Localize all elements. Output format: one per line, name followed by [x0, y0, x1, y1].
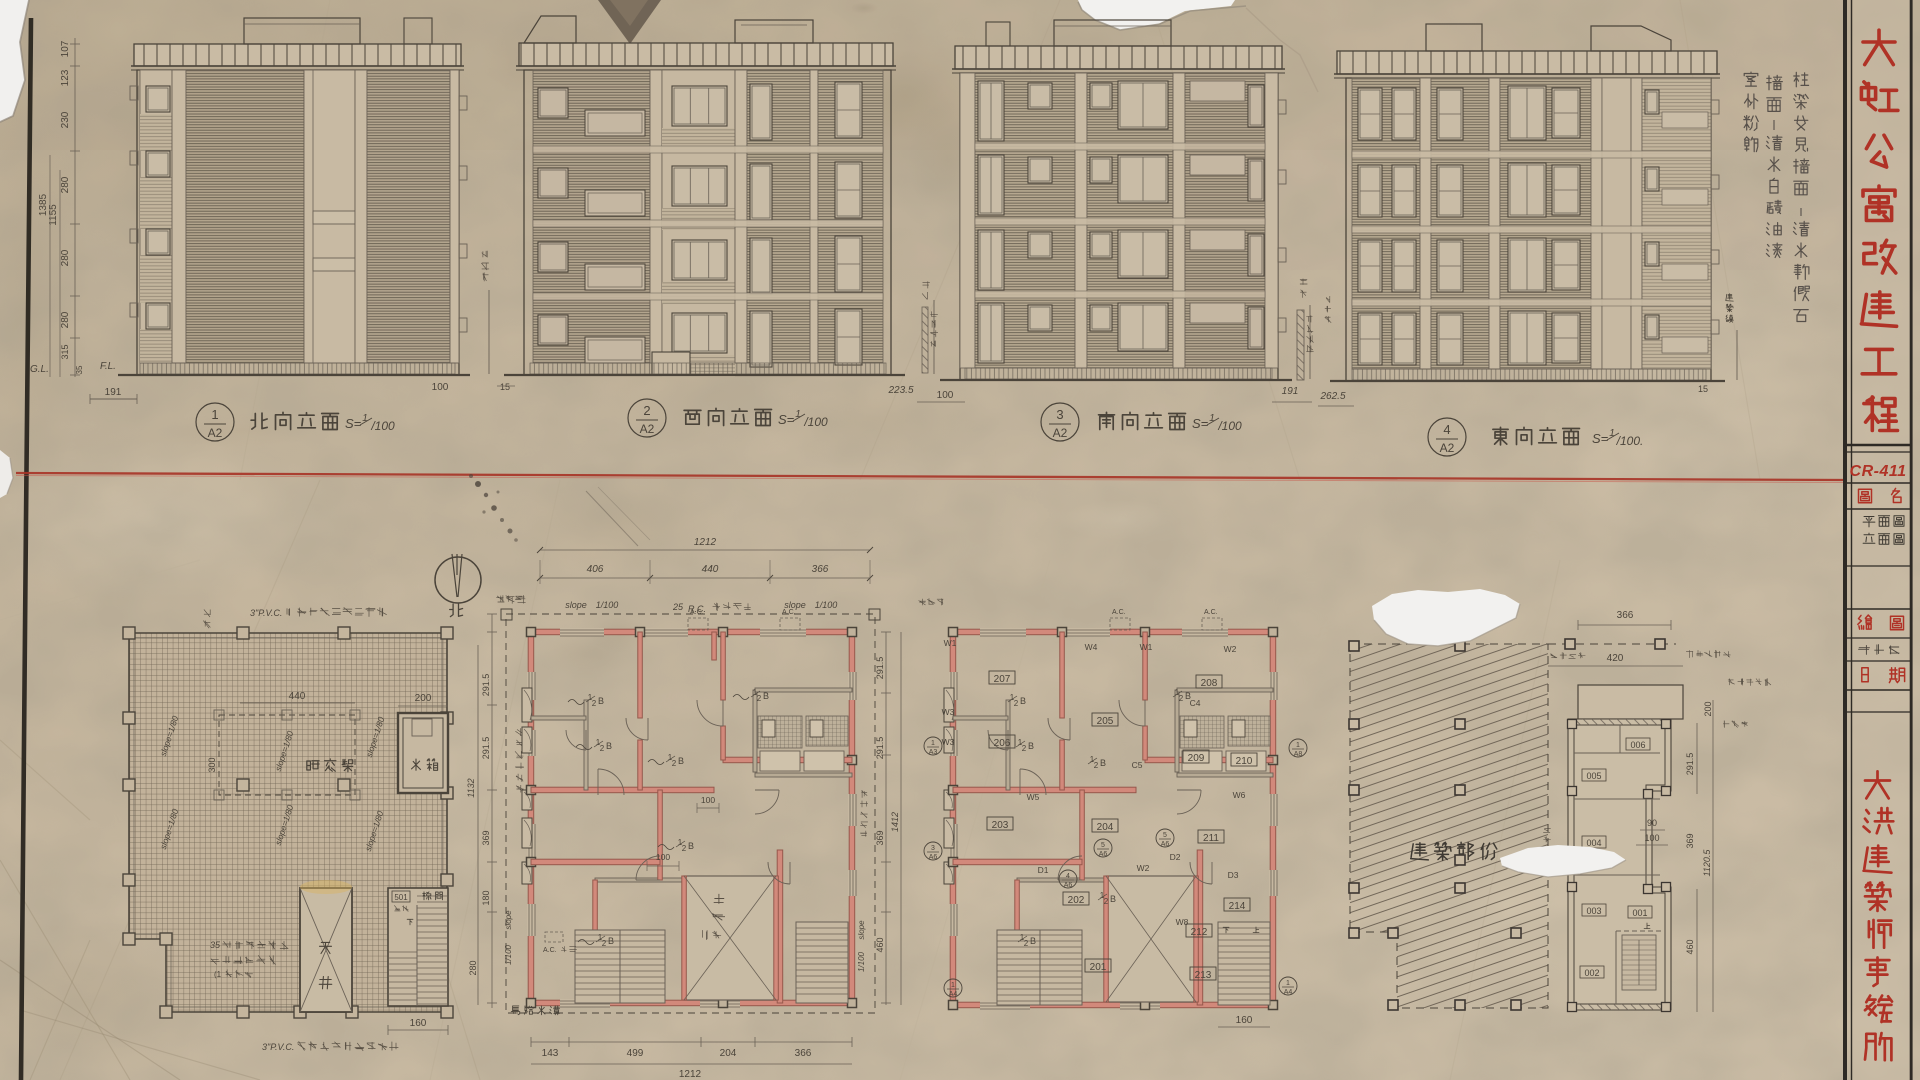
svg-text:460: 460: [875, 937, 885, 952]
svg-text:211: 211: [1203, 833, 1219, 844]
svg-text:B: B: [1030, 936, 1036, 946]
svg-text:W3: W3: [942, 737, 955, 747]
svg-text:2: 2: [1022, 744, 1027, 753]
svg-text:100: 100: [937, 390, 954, 401]
svg-text:200: 200: [415, 693, 432, 704]
svg-text:A.C.: A.C.: [543, 947, 557, 954]
svg-text:D3: D3: [1228, 870, 1239, 880]
svg-text:2: 2: [602, 939, 607, 948]
svg-text:(1: (1: [214, 970, 222, 979]
svg-text:W6: W6: [1233, 790, 1246, 800]
svg-text:204: 204: [1097, 822, 1114, 833]
svg-text:/100.: /100.: [1616, 434, 1644, 448]
svg-text:003: 003: [1586, 906, 1601, 916]
svg-text:369: 369: [875, 830, 885, 845]
svg-text:35: 35: [210, 940, 221, 950]
svg-text:1212: 1212: [694, 537, 717, 548]
svg-text:15: 15: [500, 382, 510, 392]
svg-text:A2: A2: [1440, 441, 1455, 455]
svg-text:369: 369: [481, 830, 491, 845]
svg-text:S=: S=: [1192, 416, 1209, 431]
svg-text:B: B: [763, 691, 769, 701]
svg-text:291.5: 291.5: [481, 737, 491, 760]
svg-text:002: 002: [1584, 968, 1599, 978]
svg-text:2: 2: [592, 699, 597, 708]
svg-text:366: 366: [1617, 610, 1634, 621]
svg-text:205: 205: [1097, 716, 1114, 727]
svg-text:A2: A2: [1053, 426, 1068, 440]
svg-text:B: B: [1020, 696, 1026, 706]
svg-text:B: B: [598, 696, 604, 706]
svg-text:204: 204: [720, 1048, 737, 1059]
svg-text:210: 210: [1236, 756, 1253, 767]
svg-text:C5: C5: [1132, 760, 1143, 770]
svg-text:5: 5: [1101, 842, 1105, 849]
svg-text:A2: A2: [208, 426, 223, 440]
svg-text:001: 001: [1632, 908, 1647, 918]
svg-text:160: 160: [410, 1018, 427, 1029]
svg-text:W8: W8: [1176, 917, 1189, 927]
svg-text:15: 15: [1698, 384, 1708, 394]
svg-text:A.C.: A.C.: [782, 609, 796, 616]
svg-text:1/100: 1/100: [596, 600, 619, 610]
svg-text:100: 100: [1644, 833, 1659, 843]
svg-text:230: 230: [60, 111, 71, 128]
svg-text:A6: A6: [929, 854, 938, 861]
svg-text:B: B: [688, 841, 694, 851]
svg-text:S=: S=: [778, 412, 795, 427]
svg-text:208: 208: [1201, 678, 1218, 689]
svg-text:1/100: 1/100: [504, 944, 513, 965]
svg-text:262.5: 262.5: [1319, 391, 1345, 402]
svg-text:slope: slope: [857, 920, 866, 940]
svg-text:291.5: 291.5: [875, 657, 885, 680]
svg-text:1: 1: [1286, 980, 1290, 987]
svg-text:1: 1: [931, 740, 935, 747]
svg-text:W2: W2: [1137, 863, 1150, 873]
svg-text:291.5: 291.5: [1685, 753, 1695, 776]
svg-text:A2: A2: [640, 422, 655, 436]
svg-text:A.C.: A.C.: [1112, 609, 1126, 616]
svg-text:B: B: [1100, 758, 1106, 768]
svg-text:212: 212: [1191, 927, 1208, 938]
svg-text:1/100: 1/100: [857, 951, 866, 972]
svg-text:191: 191: [1282, 386, 1299, 397]
svg-text:123: 123: [60, 69, 71, 86]
svg-text:2: 2: [600, 744, 605, 753]
svg-text:202: 202: [1068, 895, 1085, 906]
svg-text:2: 2: [643, 403, 650, 418]
svg-text:/100: /100: [1217, 419, 1242, 433]
svg-text:slope: slope: [565, 600, 587, 610]
svg-text:3: 3: [1056, 407, 1063, 422]
svg-text:4: 4: [1443, 422, 1450, 437]
svg-text:1/100: 1/100: [815, 600, 838, 610]
svg-text:100: 100: [432, 382, 449, 393]
svg-text:2: 2: [682, 844, 687, 853]
svg-text:280: 280: [60, 249, 71, 266]
svg-text:460: 460: [1685, 939, 1695, 954]
svg-text:1120.5: 1120.5: [1702, 849, 1712, 877]
svg-text:B: B: [1185, 691, 1191, 701]
svg-text:200: 200: [1703, 701, 1713, 716]
svg-text:90: 90: [1647, 818, 1657, 828]
svg-text:2: 2: [1179, 694, 1184, 703]
svg-text:2: 2: [757, 694, 762, 703]
svg-text:315: 315: [60, 344, 70, 359]
svg-text:3"P.V.C.: 3"P.V.C.: [262, 1042, 294, 1052]
svg-text:4: 4: [1066, 873, 1070, 880]
svg-text:1385: 1385: [38, 193, 49, 216]
svg-text:191: 191: [105, 387, 122, 398]
svg-text:W3: W3: [942, 707, 955, 717]
svg-text:A6: A6: [1161, 841, 1170, 848]
svg-text:006: 006: [1630, 740, 1645, 750]
svg-text:291.5: 291.5: [481, 674, 491, 697]
svg-text:2: 2: [1094, 761, 1099, 770]
svg-text:CR-411: CR-411: [1850, 463, 1907, 480]
svg-text:1: 1: [211, 407, 218, 422]
svg-text:440: 440: [289, 691, 306, 702]
svg-text:1: 1: [951, 982, 955, 989]
svg-text:F.L.: F.L.: [100, 361, 116, 372]
svg-text:160: 160: [1236, 1015, 1253, 1026]
svg-text:203: 203: [992, 820, 1009, 831]
svg-text:2: 2: [1014, 699, 1019, 708]
svg-text:3: 3: [931, 845, 935, 852]
svg-text:1: 1: [1296, 742, 1300, 749]
svg-text:slope: slope: [504, 910, 513, 930]
svg-text:W4: W4: [1085, 642, 1098, 652]
svg-text:2: 2: [672, 759, 677, 768]
svg-text:213: 213: [1195, 970, 1212, 981]
svg-text:214: 214: [1229, 901, 1246, 912]
svg-text:366: 366: [812, 564, 829, 575]
svg-text:G.L.: G.L.: [30, 364, 49, 375]
svg-text:W1: W1: [944, 638, 957, 648]
svg-text:5: 5: [1163, 832, 1167, 839]
svg-text:207: 207: [994, 674, 1011, 685]
svg-text:/100: /100: [803, 415, 828, 429]
svg-text:005: 005: [1586, 771, 1601, 781]
svg-text:3"P.V.C.: 3"P.V.C.: [250, 608, 282, 618]
svg-text:A4: A4: [1284, 989, 1293, 996]
svg-text:B: B: [1110, 894, 1116, 904]
svg-text:280: 280: [60, 311, 71, 328]
svg-text:501: 501: [394, 893, 408, 902]
svg-text:107: 107: [60, 40, 71, 57]
svg-text:366: 366: [795, 1048, 812, 1059]
svg-text:206: 206: [994, 738, 1011, 749]
svg-text:100: 100: [701, 795, 715, 805]
svg-text:A.C.: A.C.: [690, 609, 704, 616]
svg-text:1132: 1132: [466, 778, 476, 797]
svg-text:1212: 1212: [679, 1069, 702, 1080]
svg-text:C4: C4: [1190, 698, 1201, 708]
svg-text:100: 100: [656, 852, 670, 862]
svg-text:A4: A4: [949, 991, 958, 998]
svg-text:W2: W2: [1224, 644, 1237, 654]
svg-text:/100: /100: [370, 419, 395, 433]
svg-text:280: 280: [60, 176, 71, 193]
svg-text:B: B: [606, 741, 612, 751]
svg-text:406: 406: [587, 564, 604, 575]
svg-text:B: B: [608, 936, 614, 946]
svg-text:W5: W5: [1027, 792, 1040, 802]
svg-text:A8: A8: [1294, 751, 1303, 758]
svg-text:004: 004: [1586, 838, 1601, 848]
svg-text:D1: D1: [1038, 865, 1049, 875]
svg-text:A3: A3: [929, 749, 938, 756]
svg-text:35: 35: [75, 365, 84, 374]
svg-text:440: 440: [702, 564, 719, 575]
svg-text:S=: S=: [1592, 431, 1609, 446]
svg-text:499: 499: [627, 1048, 644, 1059]
svg-text:1412: 1412: [890, 812, 900, 832]
svg-text:300: 300: [207, 757, 217, 772]
svg-text:25: 25: [672, 602, 684, 612]
svg-text:W1: W1: [1140, 642, 1153, 652]
svg-text:B: B: [1028, 741, 1034, 751]
svg-text:209: 209: [1188, 753, 1205, 764]
svg-text:420: 420: [1607, 653, 1624, 664]
svg-text:S=: S=: [345, 416, 362, 431]
svg-text:A6: A6: [1064, 882, 1073, 889]
svg-text:A6: A6: [1099, 851, 1108, 858]
svg-text:2: 2: [1024, 939, 1029, 948]
svg-text:A.C.: A.C.: [1204, 609, 1218, 616]
svg-text:2: 2: [1104, 897, 1109, 906]
svg-text:280: 280: [468, 960, 478, 975]
svg-text:291.5: 291.5: [875, 737, 885, 760]
svg-text:143: 143: [542, 1048, 559, 1059]
svg-text:D2: D2: [1170, 852, 1181, 862]
svg-text:201: 201: [1090, 962, 1107, 973]
svg-text:180: 180: [481, 890, 491, 905]
svg-text:B: B: [678, 756, 684, 766]
svg-text:369: 369: [1685, 833, 1695, 848]
svg-text:223.5: 223.5: [887, 385, 913, 396]
